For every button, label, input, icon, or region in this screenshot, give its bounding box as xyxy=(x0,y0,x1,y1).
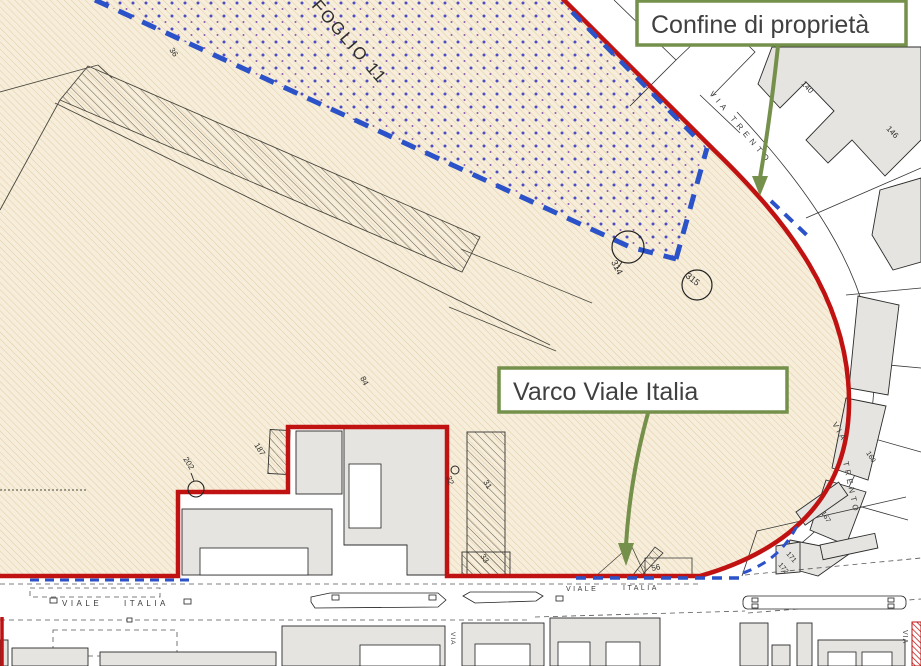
courtyard xyxy=(558,642,590,666)
road-island-1 xyxy=(311,593,446,608)
street-via-center: VIA xyxy=(449,632,456,645)
street-viale-italia-left-italia: ITALIA xyxy=(124,599,169,608)
road-symbol xyxy=(184,599,191,604)
courtyard xyxy=(360,645,440,666)
building-below xyxy=(772,645,790,666)
courtyard xyxy=(349,464,381,528)
courtyard xyxy=(862,652,892,666)
platform-mark xyxy=(752,604,758,608)
varco-label-text: Varco Viale Italia xyxy=(513,378,698,406)
platform-mark xyxy=(752,598,758,602)
building-below xyxy=(797,623,812,666)
courtyard xyxy=(475,644,530,666)
building-a xyxy=(296,431,342,494)
island-mark xyxy=(429,595,436,600)
building-below xyxy=(100,652,276,666)
street-viale-italia-left-viale: VIALE xyxy=(62,599,102,608)
confine-label-text: Confine di proprietà xyxy=(651,11,869,39)
building-below xyxy=(12,648,88,666)
road-symbol xyxy=(50,598,57,603)
tram-platform xyxy=(743,596,906,609)
street-viale-italia-mid-viale: VIALE xyxy=(566,586,598,593)
road-island-2 xyxy=(463,592,543,603)
cadastral-map: FOGLIO 11 36 314 315 84 187 202 32 31 33… xyxy=(0,0,921,666)
road-symbol xyxy=(556,596,563,601)
island-mark xyxy=(332,595,339,600)
red-hatched-strip xyxy=(912,622,921,666)
courtyard xyxy=(200,548,308,575)
road-symbol xyxy=(127,618,132,622)
building-below xyxy=(740,623,768,666)
platform-mark xyxy=(888,598,894,602)
platform-mark xyxy=(888,604,894,608)
street-viale-italia-mid-italia: ITALIA xyxy=(623,585,659,592)
courtyard xyxy=(606,642,640,666)
map-canvas: FOGLIO 11 36 314 315 84 187 202 32 31 33… xyxy=(0,0,921,666)
street-via-right: VIA xyxy=(901,630,908,644)
courtyard xyxy=(828,652,856,666)
